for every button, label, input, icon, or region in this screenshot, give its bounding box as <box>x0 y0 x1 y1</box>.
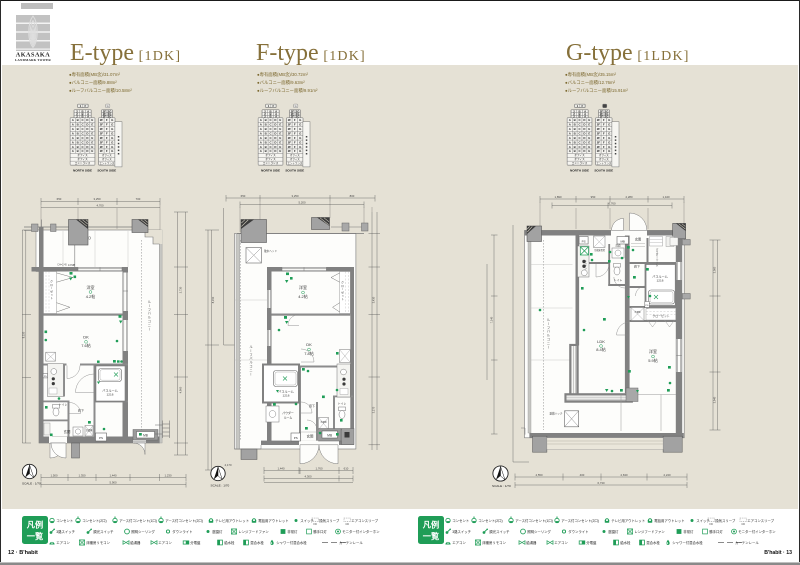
svg-text:E: E <box>588 127 590 131</box>
svg-text:非常灯: 非常灯 <box>287 529 298 534</box>
svg-text:廊下: 廊下 <box>78 408 84 413</box>
svg-text:6,730: 6,730 <box>598 481 605 485</box>
svg-text:CD: CD <box>741 522 745 526</box>
svg-text:換気スリーブ: 換気スリーブ <box>715 518 736 523</box>
svg-text:D: D <box>274 136 276 140</box>
svg-text:DK: DK <box>83 335 89 340</box>
svg-text:B: B <box>265 145 267 149</box>
svg-text:1,440: 1,440 <box>278 467 285 471</box>
svg-text:1216: 1216 <box>107 393 114 397</box>
svg-text:D: D <box>274 140 276 144</box>
svg-text:●専有面積(MB含)/30.72m²: ●専有面積(MB含)/30.72m² <box>257 71 308 78</box>
svg-text:●ルーフバルコニー面積/10.58m²: ●ルーフバルコニー面積/10.58m² <box>69 87 132 94</box>
svg-text:4,700: 4,700 <box>97 203 104 207</box>
svg-text:2F: 2F <box>288 127 292 131</box>
svg-text:レンジフードファン: レンジフードファン <box>238 529 269 534</box>
svg-text:テレビ用アウトレット: テレビ用アウトレット <box>215 518 249 523</box>
svg-text:コンセント(2口): コンセント(2口) <box>82 518 107 523</box>
svg-text:オフィス: オフィス <box>574 153 585 157</box>
svg-text:F: F <box>106 145 108 149</box>
svg-text:1,350: 1,350 <box>79 474 86 478</box>
svg-text:PS: PS <box>294 436 298 440</box>
svg-text:5,900: 5,900 <box>110 481 117 485</box>
svg-text:2F: 2F <box>288 123 292 127</box>
svg-text:G: G <box>107 104 109 108</box>
svg-text:2F: 2F <box>597 145 601 149</box>
svg-text:凡例: 凡例 <box>27 519 43 529</box>
svg-text:5,200: 5,200 <box>299 200 306 204</box>
svg-text:D: D <box>274 127 276 131</box>
svg-text:洋室: 洋室 <box>87 284 95 290</box>
svg-text:オフィス: オフィス <box>290 153 300 157</box>
svg-text:F: F <box>603 136 605 140</box>
svg-text:コンセント: コンセント <box>56 518 73 523</box>
svg-text:モニター付インターホン: モニター付インターホン <box>342 529 380 534</box>
svg-text:ルーム: ルーム <box>284 415 293 420</box>
svg-text:F: F <box>603 127 605 131</box>
svg-text:1,760: 1,760 <box>316 467 323 471</box>
svg-text:4.2帖: 4.2帖 <box>86 293 96 299</box>
svg-text:1,230: 1,230 <box>165 474 172 478</box>
svg-text:12 · B'habit: 12 · B'habit <box>8 550 38 556</box>
svg-text:F: F <box>294 131 296 135</box>
svg-text:パウダー: パウダー <box>282 410 294 415</box>
svg-text:B'habit · 13: B'habit · 13 <box>764 550 792 556</box>
svg-text:F: F <box>294 136 296 140</box>
svg-text:F: F <box>294 123 296 127</box>
svg-text:F: F <box>603 118 605 122</box>
svg-text:E: E <box>588 131 590 135</box>
svg-text:4,550: 4,550 <box>536 473 543 477</box>
svg-text:8.4帖: 8.4帖 <box>596 346 606 352</box>
svg-text:B: B <box>265 123 267 127</box>
svg-text:B: B <box>265 118 267 122</box>
svg-text:CH=2.45: CH=2.45 <box>57 264 67 267</box>
svg-text:B: B <box>574 123 576 127</box>
svg-text:E: E <box>91 149 93 153</box>
svg-text:アース付コンセント(2口): アース付コンセント(2口) <box>165 518 203 523</box>
svg-text:D: D <box>274 149 276 153</box>
svg-text:F: F <box>106 140 108 144</box>
svg-text:E: E <box>279 118 281 122</box>
svg-text:給湯器: 給湯器 <box>526 540 537 545</box>
svg-text:4,170: 4,170 <box>225 463 232 467</box>
svg-text:2,240: 2,240 <box>664 473 671 477</box>
svg-text:F: F <box>603 123 605 127</box>
svg-text:B: B <box>77 145 79 149</box>
svg-text:6,760: 6,760 <box>609 201 616 205</box>
svg-text:3,940: 3,940 <box>713 396 717 403</box>
svg-text:オフィス: オフィス <box>599 153 609 157</box>
svg-text:E: E <box>279 131 281 135</box>
svg-text:950: 950 <box>591 195 596 199</box>
svg-text:庭園灯: 庭園灯 <box>608 529 619 534</box>
svg-text:床暖房リモコン: 床暖房リモコン <box>86 540 110 545</box>
svg-text:●バルコニー面積/9.88m²: ●バルコニー面積/9.88m² <box>69 79 117 86</box>
svg-text:SCALE : 1/70: SCALE : 1/70 <box>492 484 511 488</box>
svg-text:オフィス: オフィス <box>102 157 112 161</box>
svg-text:D: D <box>274 118 276 122</box>
svg-text:玄関: 玄関 <box>64 429 71 434</box>
svg-text:E: E <box>91 131 93 135</box>
svg-text:調光スイッチ: 調光スイッチ <box>93 529 114 534</box>
svg-text:D: D <box>86 127 88 131</box>
svg-text:SOUTH SIDE: SOUTH SIDE <box>285 169 304 173</box>
svg-text:1216: 1216 <box>657 279 664 283</box>
svg-text:トイレ: トイレ <box>59 403 68 407</box>
svg-text:B: B <box>77 118 79 122</box>
svg-text:アース付コンセント(1口): アース付コンセント(1口) <box>515 518 553 523</box>
svg-text:2F: 2F <box>597 118 601 122</box>
svg-text:シャワー付混合水栓: シャワー付混合水栓 <box>672 540 703 545</box>
svg-text:SCALE : 1/70: SCALE : 1/70 <box>211 484 230 488</box>
svg-text:13 MB: 13 MB <box>68 264 75 267</box>
svg-text:650: 650 <box>241 194 246 198</box>
svg-text:NORTH SIDE: NORTH SIDE <box>570 169 589 173</box>
svg-text:エアコンスリーブ: エアコンスリーブ <box>351 518 378 523</box>
svg-text:オフィス: オフィス <box>77 157 88 161</box>
svg-text:B: B <box>265 127 267 131</box>
svg-text:エントランス: エントランス <box>287 161 302 165</box>
svg-text:電話用アウトレット: 電話用アウトレット <box>258 518 289 523</box>
svg-text:D: D <box>583 127 585 131</box>
svg-text:エアコン: エアコン <box>56 540 70 545</box>
svg-text:廊下: 廊下 <box>309 403 315 408</box>
svg-text:●バルコニー面積/12.76m²: ●バルコニー面積/12.76m² <box>565 79 616 86</box>
svg-text:E: E <box>279 140 281 144</box>
svg-text:G: G <box>295 104 297 108</box>
svg-text:給湯器: 給湯器 <box>130 540 141 545</box>
svg-text:●ルーフバルコニー面積/9.91m²: ●ルーフバルコニー面積/9.91m² <box>257 87 318 94</box>
svg-text:クローゼット: クローゼット <box>50 279 54 300</box>
svg-text:2F: 2F <box>288 118 292 122</box>
svg-text:2F: 2F <box>597 149 601 153</box>
svg-text:レンジフードファン: レンジフードファン <box>634 529 665 534</box>
svg-text:3,060: 3,060 <box>713 266 717 273</box>
svg-text:7,140: 7,140 <box>490 316 494 323</box>
svg-text:NORTH SIDE: NORTH SIDE <box>261 169 280 173</box>
svg-text:避難ハッチ: 避難ハッチ <box>550 412 563 416</box>
svg-text:トイレ: トイレ <box>338 402 347 406</box>
svg-text:給水栓: 給水栓 <box>224 540 235 545</box>
svg-text:D: D <box>583 131 585 135</box>
svg-text:アース付コンセント(2口): アース付コンセント(2口) <box>561 518 599 523</box>
svg-text:庭園灯: 庭園灯 <box>212 529 223 534</box>
svg-text:3路スイッチ: 3路スイッチ <box>56 529 75 534</box>
svg-text:エアコン: エアコン <box>554 540 568 545</box>
svg-text:エントランス: エントランス <box>263 161 279 165</box>
svg-text:B: B <box>574 131 576 135</box>
svg-text:B: B <box>265 131 267 135</box>
svg-text:2,730: 2,730 <box>179 286 183 293</box>
svg-text:1,440: 1,440 <box>663 195 670 199</box>
svg-text:800: 800 <box>350 194 355 198</box>
svg-text:2F: 2F <box>288 149 292 153</box>
svg-text:2F: 2F <box>100 145 104 149</box>
svg-text:B: B <box>77 140 79 144</box>
svg-text:照明シーリング: 照明シーリング <box>131 529 155 534</box>
svg-text:B: B <box>77 136 79 140</box>
svg-text:エントランス: エントランス <box>75 161 91 165</box>
svg-text:F: F <box>106 127 108 131</box>
svg-text:3,250: 3,250 <box>292 194 299 198</box>
svg-text:F: F <box>106 131 108 135</box>
svg-text:400: 400 <box>580 473 585 477</box>
svg-text:ダウンライト: ダウンライト <box>568 529 588 534</box>
svg-text:2,630: 2,630 <box>621 473 628 477</box>
svg-text:F: F <box>603 140 605 144</box>
svg-text:F: F <box>603 131 605 135</box>
svg-text:1216: 1216 <box>283 394 290 398</box>
svg-text:1,890: 1,890 <box>555 195 562 199</box>
svg-text:分電盤: 分電盤 <box>586 540 597 545</box>
svg-text:D: D <box>86 145 88 149</box>
svg-text:一覧: 一覧 <box>423 531 439 541</box>
svg-text:F: F <box>106 136 108 140</box>
svg-text:E: E <box>279 127 281 131</box>
svg-text:オフィス: オフィス <box>599 157 609 161</box>
svg-text:カーテンレール: カーテンレール <box>735 540 759 545</box>
svg-text:廊下: 廊下 <box>634 264 640 269</box>
svg-text:PS: PS <box>582 239 586 243</box>
svg-text:凡例: 凡例 <box>423 519 439 529</box>
svg-text:E: E <box>91 127 93 131</box>
svg-text:2F: 2F <box>288 145 292 149</box>
svg-text:2,280: 2,280 <box>626 195 633 199</box>
svg-text:調光スイッチ: 調光スイッチ <box>489 529 510 534</box>
svg-text:3,430: 3,430 <box>372 296 376 303</box>
svg-text:給水栓: 給水栓 <box>620 540 631 545</box>
svg-text:2F: 2F <box>597 136 601 140</box>
svg-text:F: F <box>273 104 275 108</box>
svg-text:パウダールーム: パウダールーム <box>655 247 658 267</box>
svg-text:2F: 2F <box>288 131 292 135</box>
svg-text:電話用アウトレット: 電話用アウトレット <box>654 518 685 523</box>
svg-text:オフィス: オフィス <box>102 153 112 157</box>
svg-text:E: E <box>588 123 590 127</box>
svg-text:●専有面積(MB含)/31.07m²: ●専有面積(MB含)/31.07m² <box>69 71 120 78</box>
svg-text:E: E <box>279 136 281 140</box>
svg-text:テレビ用アウトレット: テレビ用アウトレット <box>611 518 645 523</box>
svg-text:散水ヘッド: 散水ヘッド <box>264 249 277 253</box>
svg-text:2F: 2F <box>100 127 104 131</box>
svg-text:E: E <box>279 123 281 127</box>
svg-text:D: D <box>274 145 276 149</box>
svg-text:クローゼット: クローゼット <box>652 313 669 318</box>
svg-text:コンセント(2口): コンセント(2口) <box>478 518 503 523</box>
svg-text:MB: MB <box>327 434 332 438</box>
svg-text:スイッチ: スイッチ <box>696 518 710 523</box>
svg-text:B: B <box>77 149 79 153</box>
svg-text:カーテンレール: カーテンレール <box>339 540 363 545</box>
svg-text:1,500: 1,500 <box>51 474 58 478</box>
svg-text:F: F <box>603 145 605 149</box>
svg-text:オフィス: オフィス <box>574 157 585 161</box>
svg-text:B: B <box>574 127 576 131</box>
svg-text:4,300: 4,300 <box>305 474 312 478</box>
svg-text:F: F <box>294 140 296 144</box>
svg-text:D: D <box>86 118 88 122</box>
svg-text:B: B <box>77 131 79 135</box>
svg-text:オフィス: オフィス <box>290 157 300 161</box>
svg-text:E: E <box>91 145 93 149</box>
svg-text:D: D <box>86 140 88 144</box>
svg-text:B: B <box>574 149 576 153</box>
svg-text:F: F <box>294 127 296 131</box>
svg-text:D: D <box>583 140 585 144</box>
svg-text:クローゼット: クローゼット <box>341 280 345 301</box>
svg-text:E: E <box>279 145 281 149</box>
svg-text:E: E <box>91 123 93 127</box>
svg-text:D: D <box>583 136 585 140</box>
svg-text:3路スイッチ: 3路スイッチ <box>452 529 471 534</box>
svg-text:2F: 2F <box>597 140 601 144</box>
svg-text:2F: 2F <box>100 136 104 140</box>
svg-text:DK: DK <box>306 342 312 347</box>
svg-text:非常灯: 非常灯 <box>683 529 694 534</box>
svg-text:一覧: 一覧 <box>27 531 43 541</box>
svg-text:D: D <box>86 123 88 127</box>
svg-text:2F: 2F <box>597 131 601 135</box>
svg-text:F: F <box>582 104 584 108</box>
svg-text:エアコンスリーブ: エアコンスリーブ <box>747 518 774 523</box>
svg-text:D: D <box>583 118 585 122</box>
svg-text:B: B <box>77 123 79 127</box>
svg-text:NORTH SIDE: NORTH SIDE <box>73 169 92 173</box>
svg-text:混合水栓: 混合水栓 <box>250 540 264 545</box>
svg-text:スイッチ: スイッチ <box>300 518 314 523</box>
svg-text:モニター付インターホン: モニター付インターホン <box>738 529 776 534</box>
svg-text:2F: 2F <box>288 140 292 144</box>
svg-text:D: D <box>583 149 585 153</box>
svg-text:E: E <box>91 140 93 144</box>
svg-text:E: E <box>588 145 590 149</box>
svg-text:FD: FD <box>709 522 713 526</box>
svg-text:D: D <box>274 123 276 127</box>
svg-text:混合水栓: 混合水栓 <box>646 540 660 545</box>
svg-text:E: E <box>91 136 93 140</box>
svg-text:2F: 2F <box>100 149 104 153</box>
svg-text:E: E <box>588 136 590 140</box>
svg-text:610: 610 <box>344 467 349 471</box>
svg-text:アース付コンセント(1口): アース付コンセント(1口) <box>119 518 157 523</box>
svg-text:2F: 2F <box>100 131 104 135</box>
svg-text:ルーフバルコニー: ルーフバルコニー <box>147 300 151 331</box>
svg-text:2F: 2F <box>100 118 104 122</box>
svg-text:ダウンライト: ダウンライト <box>172 529 192 534</box>
svg-text:LANDMARK TOWER: LANDMARK TOWER <box>15 58 51 62</box>
svg-text:B: B <box>77 127 79 131</box>
svg-text:F: F <box>106 118 108 122</box>
svg-text:シャワー付混合水栓: シャワー付混合水栓 <box>276 540 307 545</box>
svg-text:洗面: 洗面 <box>615 244 621 248</box>
svg-text:650: 650 <box>57 197 62 201</box>
svg-text:F: F <box>106 123 108 127</box>
svg-text:3,250: 3,250 <box>94 197 101 201</box>
svg-text:B: B <box>574 140 576 144</box>
svg-text:ルーフバルコニー: ルーフバルコニー <box>248 345 252 376</box>
svg-text:8,150: 8,150 <box>22 331 26 338</box>
svg-text:B: B <box>574 145 576 149</box>
svg-text:勝手口灯: 勝手口灯 <box>709 529 723 534</box>
svg-text:2F: 2F <box>288 136 292 140</box>
svg-text:エントランス: エントランス <box>596 161 611 165</box>
svg-text:換気スリーブ: 換気スリーブ <box>319 518 340 523</box>
svg-text:床暖房リモコン: 床暖房リモコン <box>482 540 506 545</box>
svg-text:エアコン: エアコン <box>158 540 172 545</box>
svg-text:玄関: 玄関 <box>635 237 641 242</box>
svg-text:オフィス: オフィス <box>77 153 88 157</box>
svg-text:SOUTH SIDE: SOUTH SIDE <box>97 169 116 173</box>
svg-text:勝手口灯: 勝手口灯 <box>313 529 327 534</box>
svg-text:エントランス: エントランス <box>572 161 588 165</box>
svg-text:B: B <box>574 118 576 122</box>
svg-text:エントランス: エントランス <box>99 161 114 165</box>
svg-text:MB: MB <box>143 434 148 438</box>
svg-text:E: E <box>588 140 590 144</box>
svg-text:分電盤: 分電盤 <box>190 540 201 545</box>
svg-text:E: E <box>91 118 93 122</box>
svg-text:●専有面積(MB含)/35.15m²: ●専有面積(MB含)/35.15m² <box>565 71 616 78</box>
svg-text:1,440: 1,440 <box>110 474 117 478</box>
svg-text:2F: 2F <box>597 123 601 127</box>
svg-text:オフィス: オフィス <box>265 153 276 157</box>
svg-text:D: D <box>86 149 88 153</box>
svg-text:ルーフバルコニー: ルーフバルコニー <box>546 318 550 349</box>
svg-text:SOUTH SIDE: SOUTH SIDE <box>594 169 613 173</box>
svg-text:B: B <box>574 136 576 140</box>
svg-text:8,150: 8,150 <box>211 296 215 303</box>
svg-text:LDK: LDK <box>597 339 605 344</box>
svg-text:D: D <box>583 123 585 127</box>
svg-text:E: E <box>588 118 590 122</box>
svg-text:E: E <box>588 149 590 153</box>
svg-text:F: F <box>294 145 296 149</box>
svg-text:照明シーリング: 照明シーリング <box>527 529 551 534</box>
svg-text:コンセント: コンセント <box>452 518 469 523</box>
svg-text:F: F <box>603 149 605 153</box>
svg-text:B: B <box>265 140 267 144</box>
svg-text:SCALE : 1/70: SCALE : 1/70 <box>22 482 41 486</box>
svg-text:D: D <box>86 136 88 140</box>
svg-text:B: B <box>265 136 267 140</box>
svg-text:エアコン: エアコン <box>452 540 466 545</box>
svg-text:オフィス: オフィス <box>265 157 276 161</box>
svg-text:700: 700 <box>136 197 141 201</box>
svg-text:●バルコニー面積/9.63m²: ●バルコニー面積/9.63m² <box>257 79 305 86</box>
svg-text:CD: CD <box>345 522 349 526</box>
svg-text:D: D <box>86 131 88 135</box>
svg-text:洋室: 洋室 <box>649 348 657 354</box>
svg-text:4,900: 4,900 <box>179 386 183 393</box>
svg-text:D: D <box>274 131 276 135</box>
svg-text:F: F <box>106 149 108 153</box>
svg-text:洋室: 洋室 <box>299 284 307 290</box>
svg-text:F: F <box>294 118 296 122</box>
svg-text:2F: 2F <box>100 123 104 127</box>
svg-text:7.6帖: 7.6帖 <box>81 342 91 348</box>
svg-text:D: D <box>583 145 585 149</box>
svg-text:2F: 2F <box>597 127 601 131</box>
svg-text:FD: FD <box>313 522 317 526</box>
svg-text:3,270: 3,270 <box>372 406 376 413</box>
svg-text:MB: MB <box>620 239 625 243</box>
svg-text:F: F <box>85 104 87 108</box>
svg-text:玄関: 玄関 <box>307 434 314 439</box>
svg-text:B: B <box>265 149 267 153</box>
svg-text:E: E <box>279 149 281 153</box>
svg-text:2F: 2F <box>100 140 104 144</box>
